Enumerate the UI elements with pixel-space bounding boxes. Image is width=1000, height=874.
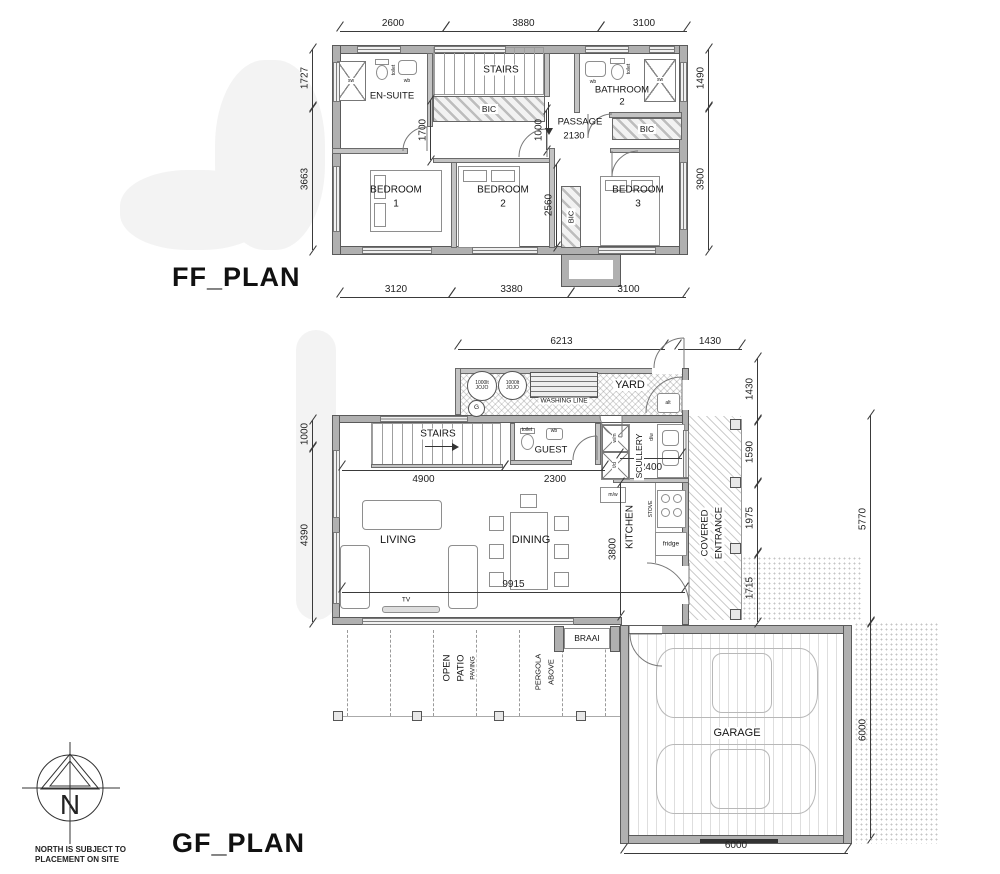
ff-dim-top-2: 3880 xyxy=(446,31,601,32)
scullery-label: SCULLERY xyxy=(634,432,644,481)
ff-dim-bottom-3: 3100 xyxy=(571,297,686,298)
gf-dim-3800: 3800 xyxy=(620,483,621,615)
gf-dim-6213: 6213 xyxy=(458,349,665,350)
covered-entrance-label-2: ENTRANCE xyxy=(714,505,725,561)
dining-chair xyxy=(520,494,537,508)
bed-pillow xyxy=(463,170,487,182)
gf-dim-5770: 5770 xyxy=(870,415,871,622)
ff-wall-stairs-right xyxy=(544,53,550,97)
jojo-name: JOJO xyxy=(476,386,489,391)
pergola-beam xyxy=(519,630,520,716)
bedroom3-label: BEDROOM xyxy=(612,185,664,196)
jojo-tank: 1000lt JOJO xyxy=(498,371,527,400)
tumble-dryer-label: t/d xyxy=(612,460,618,470)
bedroom1-number: 1 xyxy=(393,199,399,210)
pergola-post xyxy=(576,711,586,721)
ff-dim-left-1: 1727 xyxy=(312,49,313,107)
geyser: G xyxy=(468,400,485,417)
scullery-yard-door-opening xyxy=(600,416,622,422)
stairs-arrow-line xyxy=(425,446,453,447)
gf-dim-6000-bottom: 6000 xyxy=(624,853,848,854)
window xyxy=(472,247,538,254)
garage-door-to-house xyxy=(630,626,662,633)
pergola-post xyxy=(412,711,422,721)
toilet xyxy=(376,65,388,80)
window xyxy=(434,46,506,53)
pergola-label-2: ABOVE xyxy=(547,657,556,687)
pergola-beam xyxy=(390,630,391,716)
bedroom2-label: BEDROOM xyxy=(477,185,529,196)
dining-chair xyxy=(554,572,569,587)
window xyxy=(380,416,468,422)
washing-line-label: WASHING LINE xyxy=(538,398,589,405)
toilet-cistern xyxy=(610,58,625,64)
gf-dim-2300: 2300 xyxy=(505,470,605,471)
ff-wall-bed2-top xyxy=(433,158,551,163)
sofa xyxy=(362,500,442,530)
stove-burner xyxy=(673,494,682,503)
ff-dim-right-1: 1490 xyxy=(708,49,709,107)
stairs-arrow-head xyxy=(545,128,553,139)
sofa xyxy=(340,545,370,609)
gf-dim-1590: 1590 xyxy=(757,420,758,483)
car-cabin xyxy=(712,653,772,713)
north-note-line1: NORTH IS SUBJECT TO xyxy=(35,845,126,855)
entrance-column xyxy=(730,543,741,554)
window xyxy=(683,430,689,478)
braai-label: BRAAI xyxy=(574,633,600,643)
window xyxy=(680,62,687,102)
ff-chimney xyxy=(562,253,620,286)
basin-label: wb xyxy=(404,78,410,84)
pergola-post xyxy=(333,711,343,721)
open-patio-label-1: OPEN xyxy=(442,653,453,684)
yard-side-door-opening xyxy=(682,380,689,410)
dining-label: DINING xyxy=(512,534,551,546)
dining-chair xyxy=(554,516,569,531)
car-cabin xyxy=(710,749,770,809)
open-patio-label-2: PATIO xyxy=(456,652,467,683)
guest-wall-bottom xyxy=(510,460,572,465)
ff-dim-right-2: 3900 xyxy=(708,107,709,250)
geyser-label: G xyxy=(474,405,479,412)
gf-dim-1430-top: 1430 xyxy=(678,349,742,350)
bedroom3-number: 3 xyxy=(635,199,641,210)
gf-dim-6000-right: 6000 xyxy=(870,622,871,838)
stove-burner xyxy=(661,508,670,517)
ff-plan-title: FF_PLAN xyxy=(172,262,301,293)
window xyxy=(333,62,340,102)
bic-label: BIC xyxy=(567,209,576,226)
guest-label: GUEST xyxy=(535,445,568,456)
gf-dim-1715: 1715 xyxy=(757,553,758,622)
window xyxy=(680,162,687,230)
entrance-slab-edge xyxy=(741,419,742,620)
window xyxy=(585,46,629,53)
washing-line xyxy=(530,372,598,398)
yard-label: YARD xyxy=(613,379,647,391)
ff-dim-1700: 1700 xyxy=(430,100,431,160)
gf-dim-1430-right: 1430 xyxy=(757,358,758,420)
ff-dim-top-3: 3100 xyxy=(601,31,687,32)
living-label: LIVING xyxy=(380,534,416,546)
entrance-column xyxy=(730,477,741,488)
bic-label: BIC xyxy=(638,124,656,134)
gf-stairs-bottom xyxy=(371,464,503,468)
toilet-label: toilet xyxy=(522,427,533,433)
yard-fixture-label: alt xyxy=(663,400,672,406)
pergola-beam xyxy=(347,630,348,716)
sofa xyxy=(448,545,478,609)
ff-dim-bottom-1: 3120 xyxy=(340,297,452,298)
ff-dim-2560: 2560 xyxy=(556,164,557,246)
tv-unit xyxy=(382,606,440,613)
ff-dim-left-2: 3663 xyxy=(312,107,313,250)
door-arc xyxy=(612,151,638,177)
tv-label: TV xyxy=(402,597,410,604)
bedroom1-label: BEDROOM xyxy=(370,185,422,196)
bed-pillow xyxy=(491,170,515,182)
passage-dim: 2130 xyxy=(563,131,584,142)
jojo-tank: 1000lt JOJO xyxy=(467,371,497,401)
entrance-column xyxy=(730,419,741,430)
gf-dim-1000: 1000 xyxy=(312,420,313,447)
toilet-label: toilet xyxy=(391,65,397,76)
bed-pillow xyxy=(374,203,386,227)
gf-wall-under-yard xyxy=(455,415,689,423)
washing-machine-label: w/m xyxy=(612,431,618,444)
north-note: NORTH IS SUBJECT TO PLACEMENT ON SITE xyxy=(35,845,126,865)
ff-wall-ensuite-bottom xyxy=(332,148,408,154)
braai-pier xyxy=(554,626,564,652)
bathroom-label: BATHROOM xyxy=(595,85,649,96)
scan-haze xyxy=(296,330,336,620)
ff-wall-bed3-top xyxy=(610,148,680,153)
floorplan-sheet: FF_PLAN 2600 3880 3100 3120 3380 3100 17… xyxy=(0,0,1000,874)
gf-stairs-label: STAIRS xyxy=(418,429,457,440)
dishwasher-label: d/w xyxy=(649,431,655,443)
ensuite-label: EN-SUITE xyxy=(370,91,414,102)
shower-label: sw xyxy=(346,78,356,84)
window xyxy=(598,247,656,254)
basin xyxy=(398,60,417,75)
ff-stairs-label: STAIRS xyxy=(481,65,520,76)
gf-dim-2400: 2400 xyxy=(620,458,682,459)
guest-wall-left xyxy=(510,423,515,465)
gf-dim-1975: 1975 xyxy=(757,483,758,553)
yard-gate-opening xyxy=(652,368,682,374)
toilet-cistern xyxy=(375,59,389,65)
scan-haze xyxy=(120,170,270,250)
dining-chair xyxy=(554,544,569,559)
window xyxy=(333,450,340,518)
window xyxy=(333,166,340,232)
bathroom-number: 2 xyxy=(619,97,624,108)
fridge-label: fridge xyxy=(663,541,679,548)
passage-label: PASSAGE xyxy=(558,117,603,128)
dining-chair xyxy=(489,544,504,559)
stairs-arrow-head xyxy=(452,443,463,451)
ff-dim-bottom-2: 3380 xyxy=(452,297,571,298)
pergola-beam xyxy=(433,630,434,716)
garage-wall-right xyxy=(843,625,852,844)
gf-dim-4390: 4390 xyxy=(312,447,313,622)
kitchen-label: KITCHEN xyxy=(625,503,636,551)
yard-wall-left xyxy=(455,368,461,415)
dining-chair xyxy=(489,516,504,531)
window xyxy=(357,46,401,53)
garage-wall-left xyxy=(620,625,629,844)
basin-label: wb xyxy=(551,428,557,434)
toilet-label: toilet xyxy=(626,64,632,75)
basin xyxy=(585,61,606,77)
entrance-column xyxy=(730,609,741,620)
paving-label: PAVING xyxy=(470,654,477,682)
window xyxy=(362,247,432,254)
braai-pier xyxy=(610,626,620,652)
jojo-name: JOJO xyxy=(506,386,519,391)
covered-entrance-label-1: COVERED xyxy=(700,508,711,559)
ff-dim-top-1: 2600 xyxy=(340,31,446,32)
north-symbol: N xyxy=(22,740,122,850)
gf-dim-4900: 4900 xyxy=(342,470,505,471)
ff-wall-bathroom-left xyxy=(574,53,580,113)
microwave-label: m/w xyxy=(608,492,617,498)
gf-dim-9915: 9915 xyxy=(342,592,685,593)
ff-wall-bed2-left xyxy=(451,160,457,248)
pergola-label-1: PERGOLA xyxy=(534,652,543,692)
toilet xyxy=(611,64,624,80)
stove-burner xyxy=(661,494,670,503)
door-arc xyxy=(573,436,597,460)
pergola-post xyxy=(494,711,504,721)
north-letter: N xyxy=(60,789,80,820)
paving-front xyxy=(742,556,862,622)
gf-plan-title: GF_PLAN xyxy=(172,828,305,859)
toilet xyxy=(521,434,534,450)
stove-burner xyxy=(673,508,682,517)
shower-label: sw xyxy=(655,77,665,83)
stove-label: STOVE xyxy=(648,499,654,520)
bedroom2-number: 2 xyxy=(500,199,506,210)
garage-label: GARAGE xyxy=(711,727,762,739)
bic-label: BIC xyxy=(480,104,498,114)
window xyxy=(333,532,340,604)
north-note-line2: PLACEMENT ON SITE xyxy=(35,855,126,865)
sink-bowl xyxy=(662,430,679,446)
patio-sliding-doors xyxy=(362,618,574,625)
window xyxy=(649,46,675,53)
